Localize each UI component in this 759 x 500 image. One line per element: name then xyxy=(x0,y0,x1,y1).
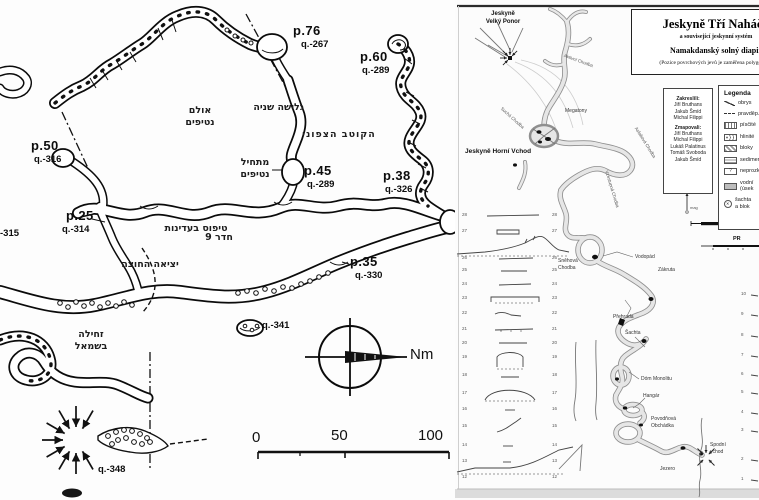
station-label-p45: p.45q.-289 xyxy=(304,164,334,190)
cross-section-number: 6 xyxy=(741,372,744,377)
cross-section-number: 21 xyxy=(552,327,557,332)
cross-section-number: 16 xyxy=(462,407,467,412)
entrance-star-icon xyxy=(42,406,93,474)
magnetic-north-label: Nm xyxy=(410,346,433,363)
station-label-p38: p.38q.-326 xyxy=(383,169,412,195)
label-exit-outside: יציאה החוצה xyxy=(114,259,186,271)
cross-section-number: 18 xyxy=(462,373,467,378)
station-label-p50: p.50q.-316 xyxy=(31,139,61,165)
screenshot-root: p.76q.-267 p.60q.-289 p.50q.-316 p.45q.-… xyxy=(0,0,759,500)
cross-section-number: 28 xyxy=(462,213,467,218)
label-crawl-left: זחילהבשמאל xyxy=(68,329,114,354)
cross-section-numbers-layer: 2828272726262525242423232222212120201919… xyxy=(455,0,759,500)
cross-section-number: 9 xyxy=(741,312,744,317)
cross-section-number: 5 xyxy=(741,390,744,395)
chamber-right xyxy=(440,210,455,234)
label-stalactites-start: מתחילנטיפים xyxy=(234,157,276,182)
cross-section-number: 18 xyxy=(552,373,557,378)
cross-section-number: 15 xyxy=(462,424,467,429)
label-room-9: חדר 9 xyxy=(198,232,240,244)
cross-section-number: 21 xyxy=(462,327,467,332)
cross-section-number: 4 xyxy=(741,410,744,415)
dashed-passage xyxy=(142,248,155,312)
scale-tick-0: 0 xyxy=(252,429,260,446)
depth-label-q315: -315 xyxy=(0,228,19,239)
cross-section-number: 7 xyxy=(741,353,744,358)
cross-section-number: 25 xyxy=(462,268,467,273)
cross-section-number: 8 xyxy=(741,333,744,338)
label-stalactite-hall: אולםנטיפים xyxy=(175,105,225,130)
station-label-p35: p.35q.-330 xyxy=(350,255,382,281)
cross-section-number: 16 xyxy=(552,407,557,412)
cross-section-number: 2 xyxy=(741,457,744,462)
cross-section-number: 22 xyxy=(552,311,557,316)
cross-section-number: 28 xyxy=(552,213,557,218)
station-label-p60: p.60q.-289 xyxy=(360,50,389,76)
depth-label-q348: q.-348 xyxy=(98,464,125,475)
station-label-p76: p.76q.-267 xyxy=(293,24,328,50)
cross-section-number: 13 xyxy=(552,459,557,464)
compass-rose-icon xyxy=(305,318,407,396)
cross-section-number: 27 xyxy=(552,229,557,234)
depth-label-q341: q.-341 xyxy=(262,320,289,331)
chamber-p76 xyxy=(257,34,287,60)
cross-section-number: 17 xyxy=(552,391,557,396)
cross-section-number: 24 xyxy=(552,282,557,287)
cross-section-number: 19 xyxy=(462,355,467,360)
scale-tick-50: 50 xyxy=(331,427,348,444)
scale-bar xyxy=(258,452,449,459)
cross-section-number: 13 xyxy=(462,459,467,464)
cross-section-number: 1 xyxy=(741,477,744,482)
cross-section-number: 15 xyxy=(552,424,557,429)
cross-section-number: 26 xyxy=(552,256,557,261)
left-cave-map: p.76q.-267 p.60q.-289 p.50q.-316 p.45q.-… xyxy=(0,0,455,500)
dashed-passage xyxy=(170,439,208,444)
cross-section-number: 23 xyxy=(462,296,467,301)
cross-section-number: 25 xyxy=(552,268,557,273)
station-label-p25: p.25q.-314 xyxy=(66,209,94,235)
cross-section-number: 14 xyxy=(462,443,467,448)
cross-section-number: 3 xyxy=(741,428,744,433)
scale-tick-100: 100 xyxy=(418,427,443,444)
cross-section-number: 14 xyxy=(552,443,557,448)
label-second-slide: גלישה שניה xyxy=(258,102,304,114)
chamber-p45 xyxy=(282,159,304,185)
cross-section-number: 12 xyxy=(462,475,467,480)
cross-section-number: 12 xyxy=(552,475,557,480)
cross-section-number: 23 xyxy=(552,296,557,301)
cross-section-number: 19 xyxy=(552,355,557,360)
cross-section-number: 17 xyxy=(462,391,467,396)
label-north-pole: הקוטב הצפוני xyxy=(298,129,380,141)
cross-section-number: 10 xyxy=(741,292,746,297)
cross-section-number: 27 xyxy=(462,229,467,234)
scan-blot xyxy=(62,489,82,498)
cross-section-number: 20 xyxy=(552,341,557,346)
cross-section-number: 20 xyxy=(462,341,467,346)
right-cave-map-sheet: JeskyněVelký Ponor Aktivní Chodba Megato… xyxy=(455,0,759,500)
cross-section-number: 24 xyxy=(462,282,467,287)
cross-section-number: 22 xyxy=(462,311,467,316)
cross-section-number: 26 xyxy=(462,256,467,261)
